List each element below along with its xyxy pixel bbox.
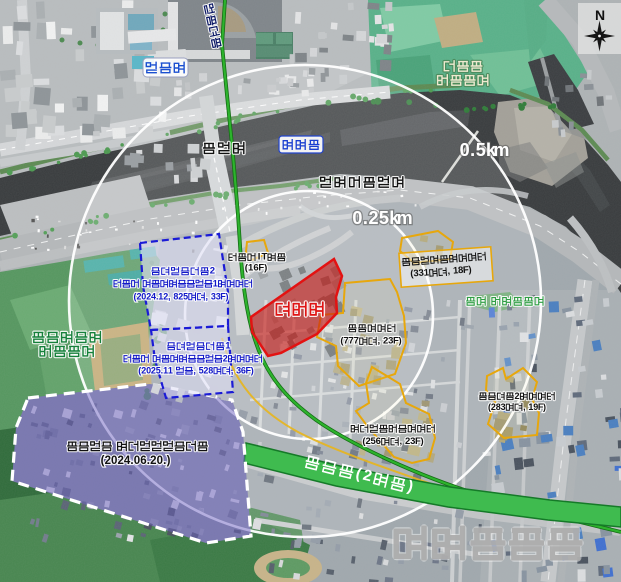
svg-text:,: , <box>231 366 234 376</box>
svg-text:0: 0 <box>460 140 470 160</box>
svg-text:0: 0 <box>111 455 117 467</box>
svg-text:): ) <box>399 336 402 347</box>
svg-text:3: 3 <box>501 402 506 412</box>
svg-text:m: m <box>397 208 413 228</box>
svg-text:5: 5 <box>183 292 188 302</box>
svg-text:): ) <box>226 292 229 302</box>
svg-text:2: 2 <box>368 208 378 228</box>
svg-text:0: 0 <box>352 208 362 228</box>
svg-text:,: , <box>168 292 171 302</box>
svg-text:2: 2 <box>514 391 519 401</box>
svg-text:7: 7 <box>354 336 359 347</box>
svg-text:1: 1 <box>213 279 218 289</box>
svg-text:m: m <box>493 140 509 160</box>
svg-text:,: , <box>206 292 209 302</box>
svg-text:8: 8 <box>208 366 213 376</box>
svg-text:.: . <box>470 140 475 160</box>
svg-text:): ) <box>421 436 424 447</box>
svg-text:2: 2 <box>210 266 215 277</box>
svg-text:2: 2 <box>150 455 156 467</box>
svg-text:,: , <box>399 436 402 447</box>
svg-text:): ) <box>543 402 546 412</box>
svg-text:6: 6 <box>376 436 381 447</box>
svg-text:T: T <box>261 252 267 263</box>
svg-text:,: , <box>377 336 380 347</box>
svg-text:1: 1 <box>225 341 231 352</box>
svg-text:.: . <box>363 208 368 228</box>
svg-text:N: N <box>595 7 605 23</box>
svg-text:,: , <box>523 402 526 412</box>
svg-text:0: 0 <box>157 455 163 467</box>
svg-text:): ) <box>251 366 254 376</box>
svg-text:1: 1 <box>168 366 173 376</box>
svg-text:2: 2 <box>223 354 228 364</box>
svg-text:I: I <box>258 252 261 263</box>
svg-text:): ) <box>167 455 171 467</box>
svg-text:): ) <box>264 263 267 274</box>
svg-text:6: 6 <box>140 455 146 467</box>
svg-text:,: , <box>193 366 196 376</box>
svg-text:5: 5 <box>379 208 389 228</box>
svg-text:5: 5 <box>476 140 486 160</box>
